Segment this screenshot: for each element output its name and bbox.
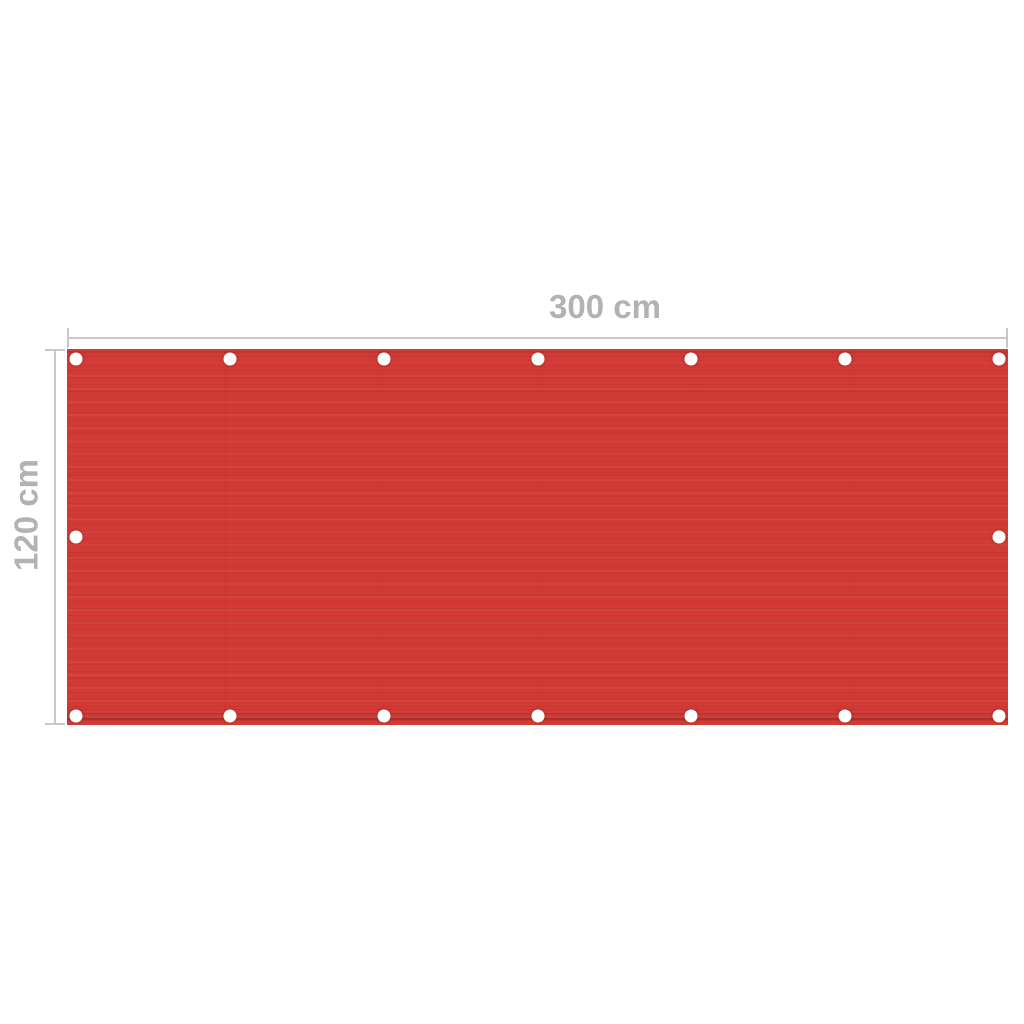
grommet bbox=[531, 709, 544, 722]
grommet bbox=[70, 709, 83, 722]
width-dimension-label: 300 cm bbox=[549, 290, 661, 323]
balcony-screen-fabric bbox=[67, 349, 1008, 725]
grommet bbox=[224, 709, 237, 722]
height-dimension-line bbox=[54, 349, 56, 725]
grommet bbox=[992, 531, 1005, 544]
grommet bbox=[685, 709, 698, 722]
grommet bbox=[70, 531, 83, 544]
grommet bbox=[531, 353, 544, 366]
height-dimension-label: 120 cm bbox=[10, 459, 43, 571]
grommet bbox=[992, 353, 1005, 366]
width-dimension-tick-right bbox=[1006, 328, 1008, 348]
height-dimension-tick-bottom bbox=[45, 723, 65, 725]
grommet bbox=[838, 353, 851, 366]
grommet bbox=[377, 709, 390, 722]
grommet bbox=[70, 353, 83, 366]
grommet bbox=[685, 353, 698, 366]
width-dimension-tick-left bbox=[67, 328, 69, 348]
grommet bbox=[224, 353, 237, 366]
height-dimension-tick-top bbox=[45, 349, 65, 351]
grommet-layer bbox=[67, 349, 1008, 725]
product-dimension-image: 300 cm 120 cm bbox=[0, 0, 1024, 1024]
width-dimension-line bbox=[67, 337, 1008, 339]
grommet bbox=[992, 709, 1005, 722]
grommet bbox=[838, 709, 851, 722]
grommet bbox=[377, 353, 390, 366]
